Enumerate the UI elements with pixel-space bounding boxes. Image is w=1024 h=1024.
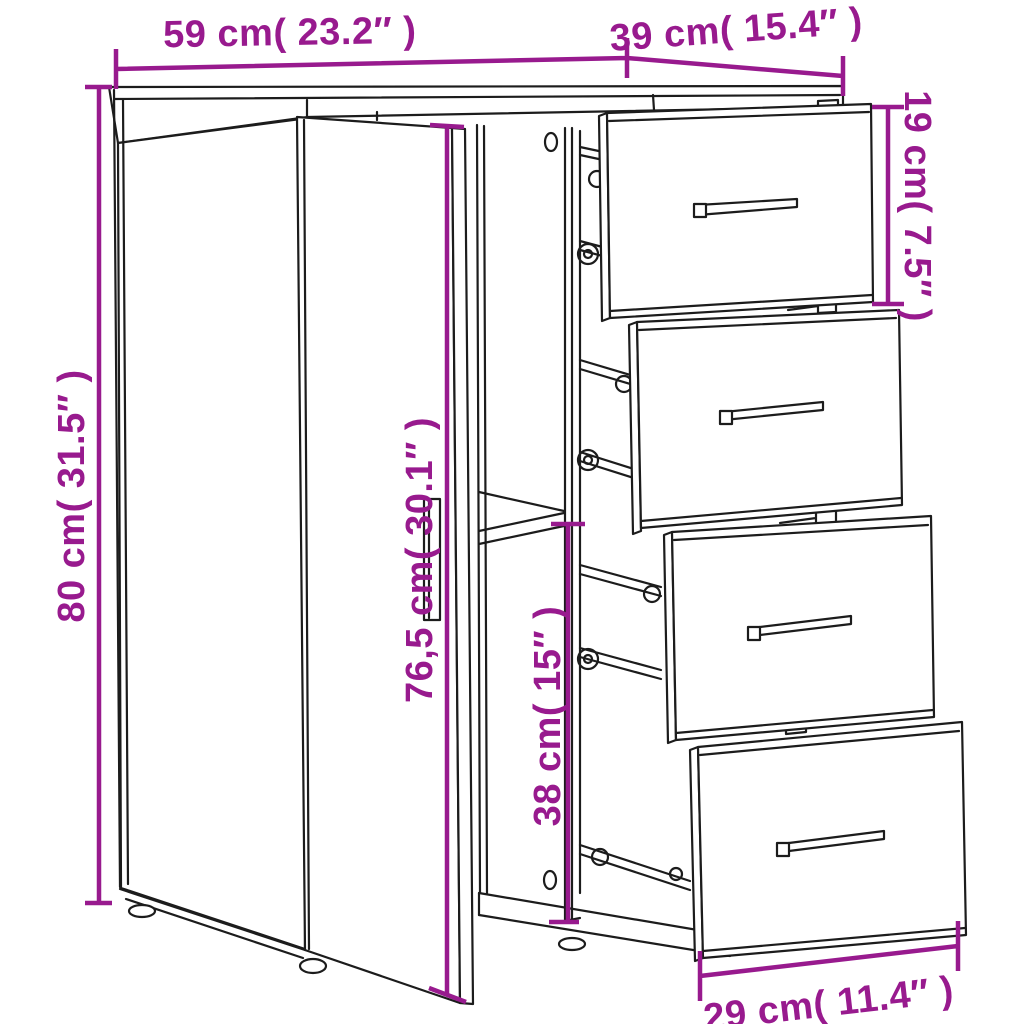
dimension-label-drawer-width: 29 cm( 11.4″ ) [701,969,955,1024]
dimension-label-compartment-height: 38 cm( 15″ ) [527,606,569,827]
dimension-overall-width: 59 cm( 23.2″ ) [116,10,627,89]
cabinet-line-drawing: 59 cm( 23.2″ ) 39 cm( 15.4″ ) 80 cm( 31.… [0,0,1024,1024]
drawer-3 [664,516,934,743]
dimension-label-door-height: 76,5 cm( 30.1″ ) [399,417,441,703]
drawer-1 [599,104,873,321]
dimension-drawer-height: 19 cm( 7.5″ ) [872,90,938,322]
drawer-2 [629,310,902,534]
dimension-overall-height: 80 cm( 31.5″ ) [51,87,112,903]
dimension-compartment-height: 38 cm( 15″ ) [527,524,585,922]
drawer-4 [690,722,966,961]
dimension-label-drawer-height: 19 cm( 7.5″ ) [896,90,938,322]
cabinet-left-panel [118,118,308,949]
cam-hole-bottom [544,871,556,889]
middle-shelf [479,492,564,544]
dimension-overall-depth: 39 cm( 15.4″ ) [608,0,864,96]
drawer-2-front [637,310,902,528]
dimension-label-overall-height: 80 cm( 31.5″ ) [51,369,93,622]
cam-hole-top [545,133,557,151]
product-dimension-diagram: 59 cm( 23.2″ ) 39 cm( 15.4″ ) 80 cm( 31.… [0,0,1024,1024]
dimension-label-overall-width: 59 cm( 23.2″ ) [163,10,417,56]
dimension-label-overall-depth: 39 cm( 15.4″ ) [608,0,864,60]
